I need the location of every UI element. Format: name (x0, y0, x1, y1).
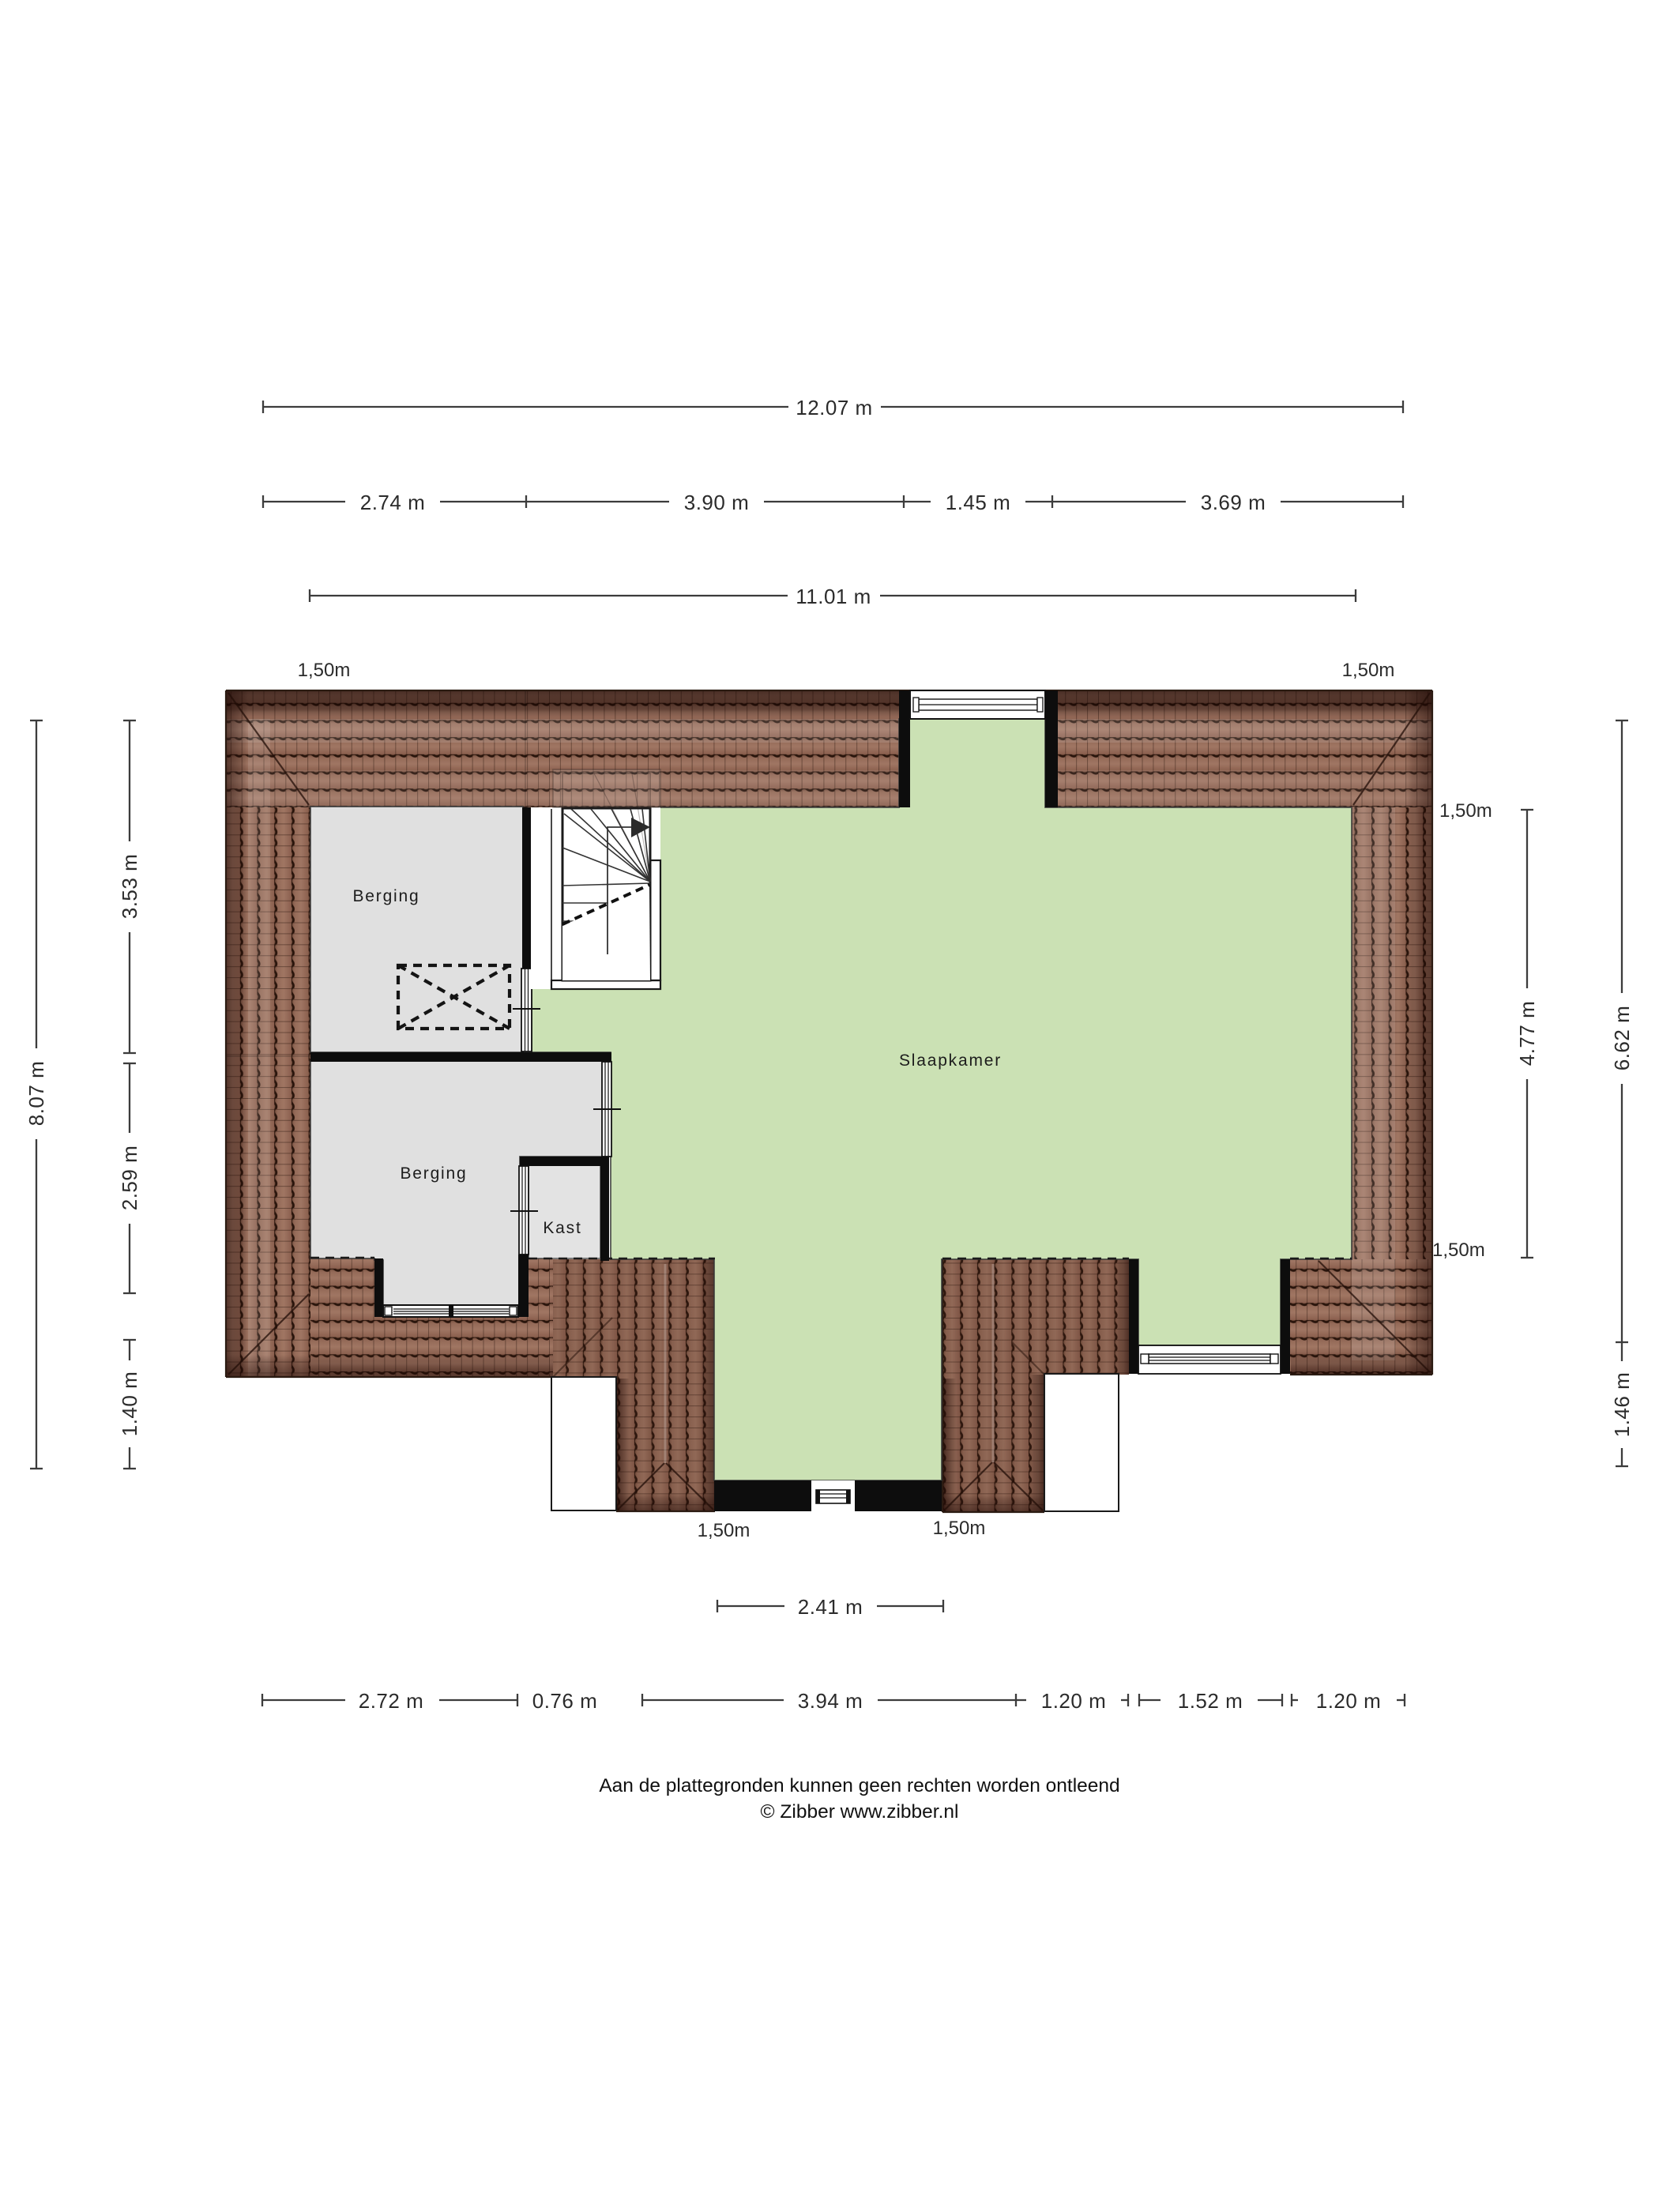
svg-text:2.41 m: 2.41 m (798, 1595, 863, 1619)
svg-text:6.62 m: 6.62 m (1610, 1006, 1634, 1071)
svg-text:Berging: Berging (401, 1164, 468, 1183)
svg-text:1,50m: 1,50m (698, 1520, 750, 1541)
svg-text:1,50m: 1,50m (298, 660, 351, 681)
svg-text:1.40 m: 1.40 m (118, 1371, 141, 1437)
svg-text:1.45 m: 1.45 m (946, 491, 1011, 514)
svg-text:2.72 m: 2.72 m (359, 1689, 424, 1713)
svg-text:3.90 m: 3.90 m (684, 491, 750, 514)
svg-text:1,50m: 1,50m (1439, 800, 1492, 822)
svg-text:© Zibber www.zibber.nl: © Zibber www.zibber.nl (761, 1801, 959, 1823)
svg-text:1,50m: 1,50m (1432, 1240, 1485, 1261)
svg-text:1.46 m: 1.46 m (1610, 1372, 1634, 1438)
svg-text:Berging: Berging (353, 887, 420, 905)
svg-text:Kast: Kast (543, 1219, 581, 1237)
svg-text:3.94 m: 3.94 m (798, 1689, 863, 1713)
svg-text:2.59 m: 2.59 m (118, 1145, 141, 1211)
svg-text:3.53 m: 3.53 m (118, 854, 141, 920)
svg-text:8.07 m: 8.07 m (24, 1061, 48, 1127)
svg-text:1.20 m: 1.20 m (1316, 1689, 1382, 1713)
svg-text:Aan de plattegronden kunnen ge: Aan de plattegronden kunnen geen rechten… (599, 1775, 1119, 1796)
svg-text:1.52 m: 1.52 m (1178, 1689, 1243, 1713)
svg-text:4.77 m: 4.77 m (1515, 1001, 1539, 1066)
svg-text:2.74 m: 2.74 m (360, 491, 426, 514)
svg-text:1,50m: 1,50m (933, 1518, 986, 1539)
svg-text:12.07 m: 12.07 m (796, 396, 872, 419)
svg-text:3.69 m: 3.69 m (1201, 491, 1266, 514)
svg-text:Slaapkamer: Slaapkamer (899, 1051, 1002, 1070)
svg-text:1.20 m: 1.20 m (1041, 1689, 1107, 1713)
svg-text:11.01 m: 11.01 m (796, 585, 871, 608)
svg-text:1,50m: 1,50m (1342, 660, 1395, 681)
svg-text:0.76 m: 0.76 m (532, 1689, 598, 1713)
